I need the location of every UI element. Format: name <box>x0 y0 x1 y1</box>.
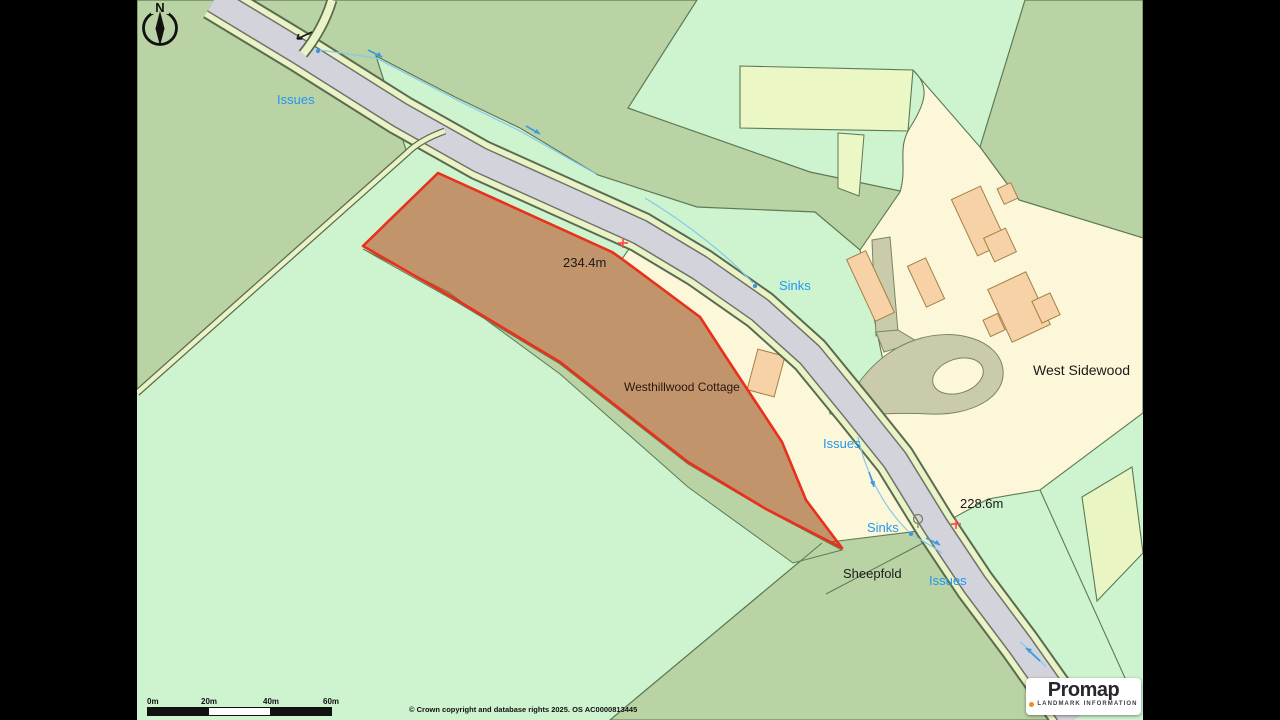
label-spot-height-a: 234.4m <box>563 256 606 270</box>
scale-bar: 0m 20m 40m 60m <box>147 697 347 719</box>
promap-brand: Promap <box>1026 680 1141 701</box>
promap-logo: Promap LANDMARK INFORMATION <box>1026 678 1141 715</box>
label-spot-height-b: 228.6m <box>960 497 1003 511</box>
field-pale-top <box>740 66 913 131</box>
copyright-attribution: © Crown copyright and database rights 20… <box>409 705 637 714</box>
label-sheepfold: Sheepfold <box>843 567 902 581</box>
label-sinks-mid: Sinks <box>779 279 811 293</box>
scale-tick: 60m <box>323 697 339 706</box>
label-sinks-low: Sinks <box>867 521 899 535</box>
scale-tick: 40m <box>263 697 279 706</box>
label-issues-nw: Issues <box>277 93 315 107</box>
letterbox-right <box>1143 0 1280 720</box>
logo-dot-icon <box>1029 702 1034 707</box>
scale-tick: 20m <box>201 697 217 706</box>
scale-bar-segments <box>147 707 332 716</box>
field-pale-top-2 <box>838 133 864 196</box>
label-issues-mid: Issues <box>823 437 861 451</box>
map-layers: N <box>137 0 1143 720</box>
compass-n: N <box>155 0 164 15</box>
promap-tagline: LANDMARK INFORMATION <box>1037 701 1137 707</box>
scale-tick: 0m <box>147 697 159 706</box>
label-west-sidewood: West Sidewood <box>1033 363 1130 378</box>
label-issues-low: Issues <box>929 574 967 588</box>
label-westhillwood-cottage: Westhillwood Cottage <box>624 381 740 394</box>
letterbox-left <box>0 0 137 720</box>
map-canvas[interactable]: N <box>0 0 1280 720</box>
map-viewport: N Issues Sinks Issues Sinks Issues 234.4… <box>0 0 1280 720</box>
